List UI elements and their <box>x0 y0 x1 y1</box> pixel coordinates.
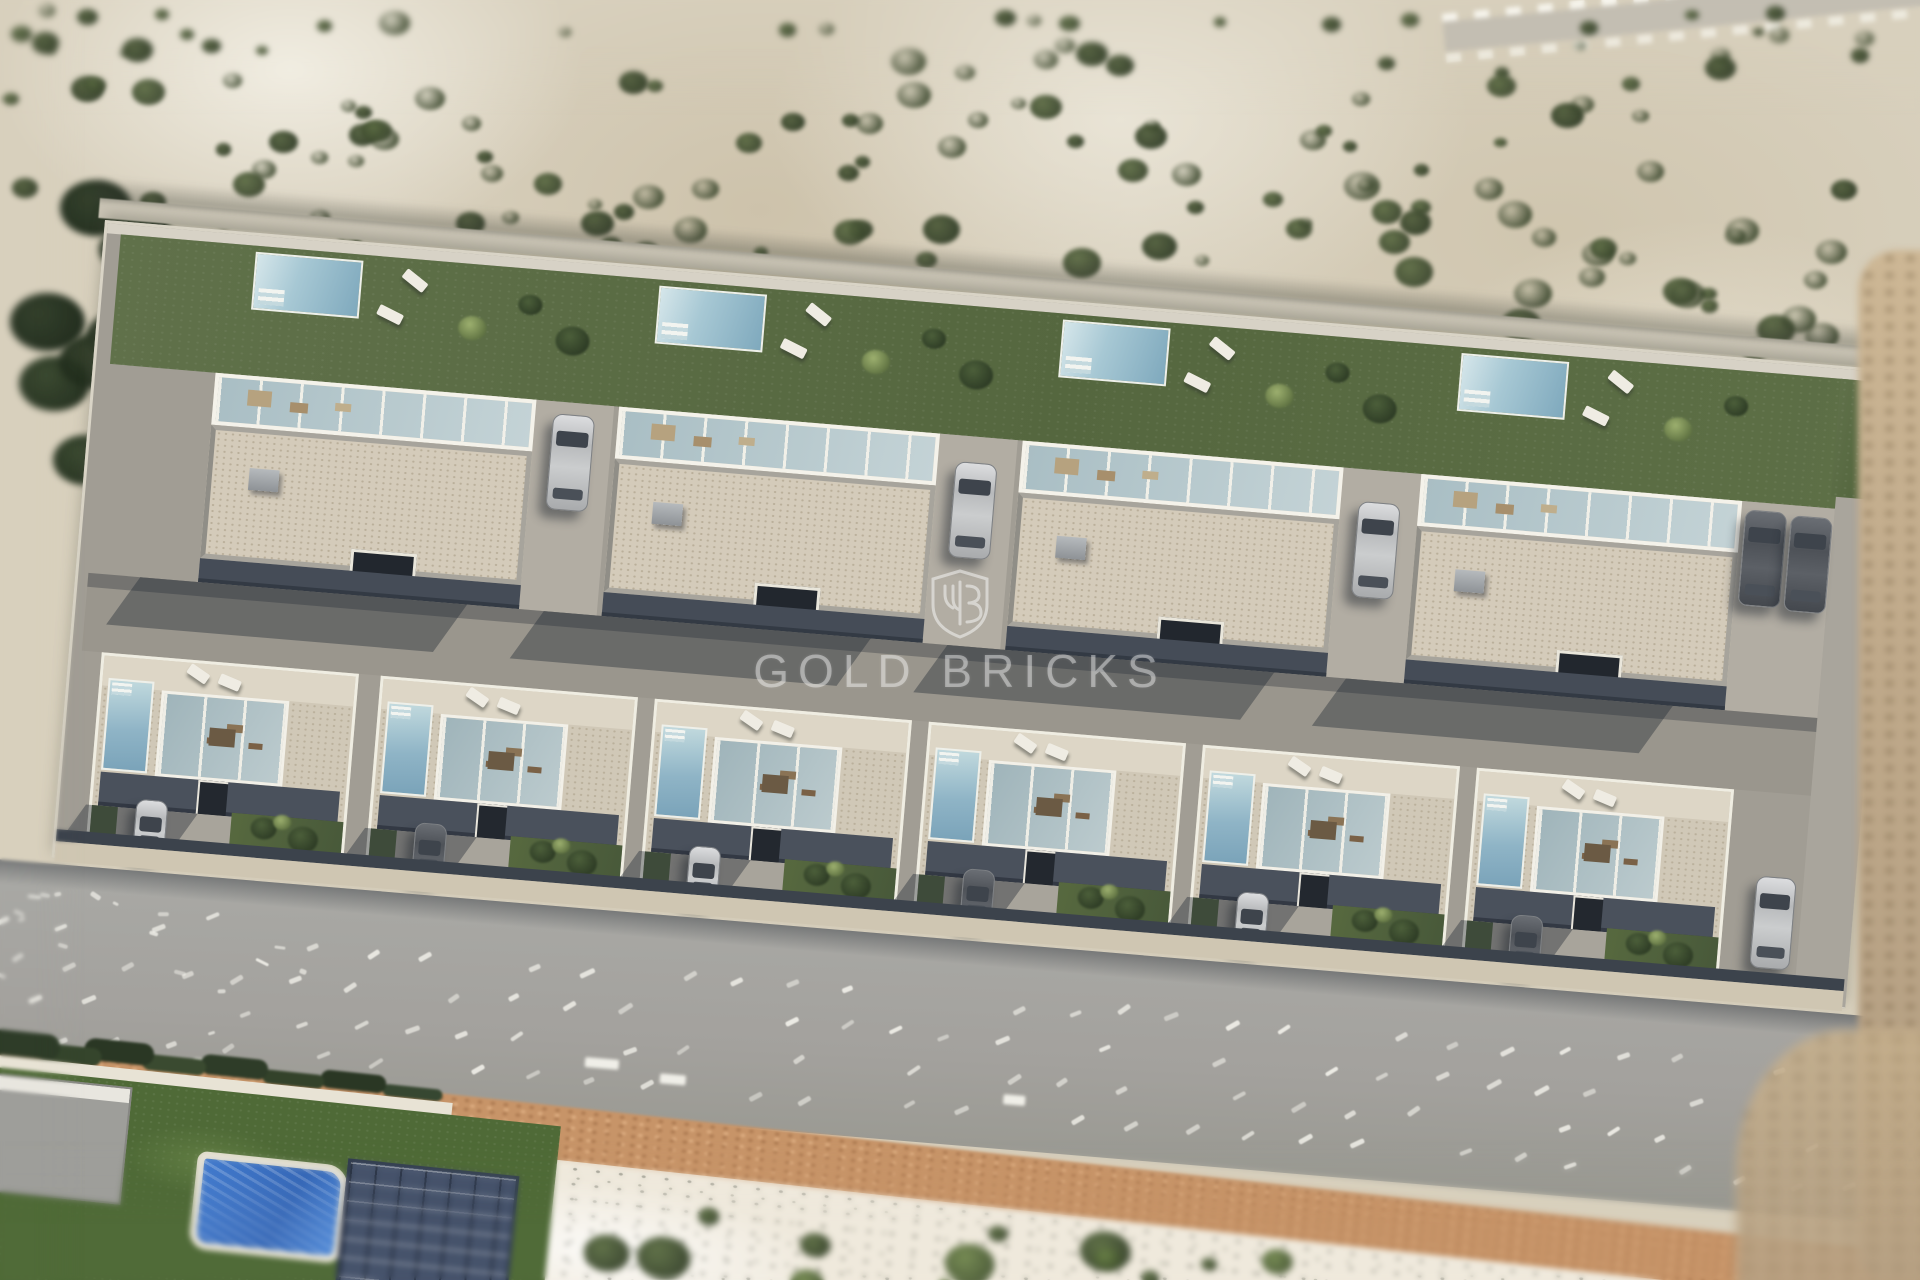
parking-mark <box>1241 1130 1255 1141</box>
parking-mark <box>907 1065 921 1077</box>
garden-pool <box>1457 353 1569 420</box>
scrub-bush <box>1498 201 1532 228</box>
parking-mark <box>526 1070 541 1080</box>
beach-shrub <box>943 1241 997 1280</box>
pergola-dining-set <box>761 774 788 794</box>
car-rear-window <box>1744 584 1775 597</box>
parking-mark <box>841 985 854 994</box>
scrub-bush <box>1622 77 1640 91</box>
pool-steps <box>938 752 959 766</box>
scrub-bush <box>1372 200 1403 224</box>
car-rear-window <box>1790 589 1821 602</box>
pergola-furniture <box>1453 491 1478 509</box>
scrub-bush <box>269 131 298 153</box>
road-speckle <box>218 989 226 993</box>
scrub-bush <box>1670 281 1705 308</box>
scrub-bush <box>1034 50 1059 69</box>
parking-mark <box>937 1034 950 1042</box>
scrub-bush <box>1571 96 1594 114</box>
garden-pool <box>251 252 363 319</box>
car-windshield <box>1748 527 1781 545</box>
parking-mark <box>1185 1124 1200 1136</box>
road-wear-patch <box>1003 1094 1026 1106</box>
scrub-bush <box>633 185 664 209</box>
parking-mark <box>1436 1071 1451 1081</box>
parking-mark <box>1098 1044 1111 1053</box>
glass-pergola <box>1256 783 1391 879</box>
parking-mark <box>1278 1024 1292 1035</box>
parking-mark <box>317 1050 332 1059</box>
parking-mark <box>1375 1072 1388 1082</box>
parked-car <box>1783 515 1833 614</box>
road-wear-patch <box>585 1057 620 1070</box>
scrub-bush <box>1263 192 1283 208</box>
scrub-bush <box>1619 252 1636 265</box>
pergola-dining-set <box>487 751 514 771</box>
parking-mark <box>786 979 800 988</box>
car-windshield <box>1361 518 1394 536</box>
parking-mark <box>296 1021 308 1029</box>
scrub-bush <box>647 80 663 92</box>
scrub-bush <box>1494 138 1506 147</box>
parking-mark <box>1445 1042 1458 1051</box>
car-rear-window <box>1358 575 1389 588</box>
car-windshield <box>1794 532 1827 550</box>
scrub-bush <box>1142 233 1177 260</box>
parking-mark <box>1459 1148 1473 1157</box>
scrub-bush <box>379 11 410 35</box>
scrub-bush <box>938 136 966 158</box>
car-windshield <box>1514 932 1537 949</box>
scrub-bush <box>362 120 391 143</box>
scrub-bush <box>1214 17 1227 27</box>
car-windshield <box>1240 909 1263 926</box>
courtyard-pool <box>1476 793 1530 889</box>
beach-shrub <box>988 1224 1010 1242</box>
car-windshield <box>556 431 589 449</box>
beach-shrub <box>1141 1270 1160 1280</box>
scrub-bush <box>534 173 562 195</box>
scrub-bush <box>1059 16 1079 32</box>
scrub-bush <box>1118 159 1148 182</box>
glass-pergola <box>982 760 1117 856</box>
parking-mark <box>623 1047 638 1056</box>
scrub-bush <box>84 77 105 93</box>
scrub-bush <box>348 155 364 167</box>
pool-steps <box>111 682 132 696</box>
back-row-villa-lot <box>914 722 1186 923</box>
back-row-villa-lot <box>640 699 912 900</box>
scrub-bush <box>838 165 859 181</box>
road-speckle <box>207 1031 214 1036</box>
scrub-bush <box>1487 75 1517 98</box>
parking-mark <box>1678 1164 1691 1175</box>
scrub-bush <box>155 9 170 20</box>
aerial-render-scene: GOLD BRICKS <box>0 0 1920 1280</box>
stairwell <box>1571 895 1604 931</box>
scrub-bush <box>1106 55 1134 77</box>
scrub-bush <box>477 151 493 164</box>
parking-mark <box>1298 1133 1313 1144</box>
road-speckle <box>299 968 307 975</box>
neighbour-building-roof <box>0 1072 133 1205</box>
parked-car <box>1351 501 1401 600</box>
scrub-bush <box>1401 13 1419 27</box>
beach-shrub <box>1200 1257 1217 1271</box>
road-speckle <box>17 916 25 922</box>
scrub-bush <box>614 204 635 220</box>
scrub-bush <box>1195 255 1210 266</box>
scrub-bush <box>619 71 648 94</box>
scrub-bush <box>1378 57 1394 70</box>
road-speckle <box>90 891 102 901</box>
parking-mark <box>903 1100 916 1110</box>
parking-mark <box>447 992 460 1004</box>
scrub-bush <box>1580 21 1598 35</box>
scrub-bush <box>1574 41 1586 50</box>
parking-mark <box>995 1035 1011 1046</box>
scrub-bush <box>856 113 884 135</box>
parking-mark <box>563 1001 578 1013</box>
scrub-bush <box>842 114 859 127</box>
parking-mark <box>121 962 135 972</box>
beach-shrub <box>799 1231 832 1259</box>
car-windshield <box>966 885 989 902</box>
pool-steps <box>1487 798 1508 812</box>
back-row-villa-lot <box>87 652 359 853</box>
ac-unit <box>1055 536 1087 560</box>
parking-mark <box>888 1025 902 1035</box>
parking-mark <box>1500 1046 1516 1057</box>
pergola-dining-set <box>1035 797 1062 817</box>
gold-bricks-shield-logo <box>929 568 991 640</box>
stairwell <box>1297 872 1330 908</box>
parking-mark <box>28 995 43 1005</box>
parking-mark <box>366 948 380 959</box>
parking-mark <box>1534 1085 1550 1097</box>
parking-mark <box>404 1025 419 1035</box>
scrub-bush <box>355 106 372 119</box>
parking-mark <box>54 923 68 932</box>
car-windshield <box>692 862 715 879</box>
scrub-bush <box>923 215 960 244</box>
scrub-bush <box>317 20 332 32</box>
back-row-villa-lot <box>366 676 638 877</box>
scrub-bush <box>1316 125 1332 137</box>
parking-mark <box>510 1031 524 1043</box>
parking-mark <box>676 1045 690 1056</box>
beach-shrub <box>697 1207 720 1227</box>
parking-mark <box>785 1016 800 1026</box>
scrub-bush <box>891 48 926 75</box>
scrub-bush <box>1685 10 1698 20</box>
back-row-villa-lot <box>1188 745 1460 946</box>
parking-mark <box>793 1054 806 1065</box>
courtyard-pool <box>380 701 434 797</box>
pool-steps <box>664 729 685 743</box>
glass-pergola <box>434 714 569 810</box>
glass-pergola <box>708 737 843 833</box>
parked-car <box>545 413 595 512</box>
scrub-bush <box>1532 228 1556 246</box>
ac-unit <box>651 502 683 526</box>
parking-mark <box>471 1064 485 1075</box>
stairwell <box>196 780 229 816</box>
pergola-dining-set <box>1310 820 1337 840</box>
scrub-bush <box>311 151 329 165</box>
scrub-bush <box>216 143 232 155</box>
parked-car <box>1749 876 1797 971</box>
scrub-bush <box>1135 124 1167 149</box>
parking-mark <box>1559 1124 1572 1133</box>
scrub-bush <box>1343 141 1358 152</box>
scrub-bush <box>1352 92 1370 106</box>
scrub-bush <box>1076 42 1108 67</box>
scrub-bush <box>1067 135 1084 148</box>
front-row-villa <box>198 373 536 609</box>
courtyard-pool <box>928 747 982 843</box>
road-speckle <box>255 958 269 967</box>
scrub-bush <box>968 112 989 128</box>
parking-mark <box>1013 1005 1027 1015</box>
scrub-bush <box>1055 38 1075 54</box>
parking-mark <box>1123 1121 1138 1132</box>
road-wear-patch <box>659 1073 686 1085</box>
road-speckle <box>206 912 220 921</box>
scrub-bush <box>692 179 718 199</box>
parking-mark <box>62 962 77 973</box>
parking-mark <box>797 1095 812 1106</box>
scrub-bush <box>1579 267 1605 287</box>
ac-unit <box>1454 569 1486 593</box>
road-speckle <box>58 942 69 949</box>
courtyard-pool <box>1202 770 1256 866</box>
parking-mark <box>617 1002 633 1015</box>
scrub-bush <box>1322 17 1342 32</box>
scrub-bush <box>180 29 194 40</box>
parking-mark <box>354 1021 369 1031</box>
car-rear-window <box>1756 946 1785 959</box>
scrub-bush <box>736 133 761 153</box>
scrub-bush <box>39 4 55 16</box>
courtyard-pool <box>654 724 708 820</box>
parking-mark <box>1607 1126 1621 1137</box>
parking-mark <box>583 1077 595 1086</box>
pool-steps <box>1463 389 1490 407</box>
courtyard-pool <box>101 678 155 774</box>
parking-mark <box>1670 1052 1683 1062</box>
parking-mark <box>0 916 10 927</box>
road-speckle <box>54 892 61 897</box>
scrub-bush <box>415 87 445 110</box>
scrub-bush <box>1379 230 1410 254</box>
pool-steps <box>1212 775 1233 789</box>
parking-mark <box>1115 1085 1128 1095</box>
scrub-bush <box>897 82 931 108</box>
parking-mark <box>81 994 96 1004</box>
scrub-bush <box>3 93 19 105</box>
parking-mark <box>1486 1079 1502 1091</box>
watermark-text: GOLD BRICKS <box>740 644 1180 698</box>
road-speckle <box>39 893 50 899</box>
parking-mark <box>508 993 520 1002</box>
scrub-bush <box>223 73 242 88</box>
scrub-bush <box>341 100 357 112</box>
scrub-bush <box>32 32 60 53</box>
beach-shrub <box>788 1268 826 1280</box>
scrub-bush <box>1011 98 1025 109</box>
scrub-bush <box>481 165 503 182</box>
parking-mark <box>1395 1032 1409 1042</box>
pergola-furniture <box>247 390 272 408</box>
scrub-bush <box>1172 163 1201 186</box>
watermark: GOLD BRICKS <box>740 568 1180 698</box>
scrub-bush <box>1632 110 1648 123</box>
scrub-bush <box>11 26 32 43</box>
parking-mark <box>1689 1098 1704 1107</box>
pergola-dining-set <box>1584 843 1611 863</box>
back-row-villa-lot <box>1462 768 1734 969</box>
beach-shrub <box>1261 1248 1294 1276</box>
parking-mark <box>230 974 244 985</box>
scrub-bush <box>122 38 154 63</box>
pergola-furniture <box>651 423 676 441</box>
scrub-bush <box>1027 15 1041 26</box>
car-windshield <box>139 816 162 833</box>
parking-mark <box>306 942 319 951</box>
pool-steps <box>258 288 285 306</box>
scrub-bush <box>1187 201 1204 214</box>
scrub-bush <box>1753 28 1764 37</box>
parking-mark <box>1559 1046 1571 1055</box>
scrub-bush <box>1705 56 1736 80</box>
parking-mark <box>1563 1162 1577 1170</box>
road-speckle <box>0 970 6 979</box>
scrub-bush <box>132 79 165 105</box>
parking-mark <box>239 1010 251 1018</box>
parking-mark <box>417 951 432 963</box>
scrub-bush <box>1769 27 1789 42</box>
parking-mark <box>1514 1151 1528 1162</box>
scrub-bush <box>855 156 870 168</box>
solar-panel-roof <box>332 1158 520 1280</box>
parking-mark <box>1070 1114 1085 1125</box>
parking-mark <box>1117 1003 1132 1015</box>
parking-mark <box>1654 1134 1666 1144</box>
parking-mark <box>841 1019 855 1030</box>
parking-mark <box>1055 1077 1068 1088</box>
road-speckle <box>274 945 286 950</box>
stairwell <box>475 803 508 839</box>
scrub-bush <box>588 199 602 210</box>
glass-pergola <box>1530 806 1665 902</box>
scrub-bush <box>1816 240 1847 264</box>
parking-mark <box>11 952 24 962</box>
scrub-bush <box>1414 164 1429 176</box>
road-speckle <box>28 895 41 900</box>
parking-mark <box>454 1030 468 1040</box>
glass-pergola <box>155 690 290 786</box>
road-speckle <box>158 912 169 916</box>
scrub-bush <box>462 116 481 131</box>
scrub-bush <box>1725 228 1746 244</box>
scrub-bush <box>256 46 268 55</box>
scrub-bush <box>781 113 805 131</box>
car-rear-window <box>955 535 986 548</box>
parking-mark <box>729 977 743 987</box>
parking-mark <box>579 968 595 979</box>
parking-mark <box>1163 1011 1179 1021</box>
scrub-bush <box>1400 210 1432 235</box>
parking-mark <box>1344 1109 1357 1120</box>
scrub-bush <box>1395 257 1433 286</box>
parking-mark <box>1406 1104 1421 1117</box>
parking-mark <box>1232 1091 1246 1101</box>
parking-mark <box>1069 1010 1081 1018</box>
parking-mark <box>953 1105 969 1116</box>
front-row-villa <box>1404 474 1742 710</box>
car-windshield <box>1759 893 1790 910</box>
car-windshield <box>958 478 991 496</box>
stairwell <box>1023 849 1056 885</box>
parking-mark <box>1350 1138 1366 1149</box>
scrub-bush <box>1299 218 1312 228</box>
pergola-furniture <box>1054 457 1079 475</box>
parking-mark <box>683 971 697 982</box>
scrub-bush <box>1637 161 1664 182</box>
ac-unit <box>248 468 280 492</box>
road-speckle <box>112 901 119 907</box>
parked-car <box>948 461 998 560</box>
parking-mark <box>528 963 541 972</box>
parking-mark <box>1324 1067 1338 1078</box>
garden-pool <box>655 286 767 353</box>
parking-mark <box>640 1079 654 1090</box>
scrub-bush <box>1831 180 1856 200</box>
scrub-bush <box>202 39 221 53</box>
parking-mark <box>1211 1058 1226 1069</box>
pool-steps <box>390 706 411 720</box>
scrub-bush <box>1804 271 1827 289</box>
scrub-bush <box>1030 95 1061 119</box>
scrub-bush <box>1855 31 1875 46</box>
scrub-bush <box>779 23 796 36</box>
scrub-bush <box>1851 48 1869 62</box>
parked-car <box>1738 509 1788 608</box>
stairwell <box>749 826 782 862</box>
neighbour-swimming-pool <box>188 1151 349 1264</box>
parking-mark <box>289 975 303 984</box>
parking-mark <box>749 1091 763 1101</box>
scrub-bush <box>819 23 834 35</box>
parking-mark <box>1007 1073 1022 1085</box>
scrub-bush <box>955 65 975 81</box>
pergola-dining-set <box>208 728 235 748</box>
scrub-bush <box>12 178 38 198</box>
pool-steps <box>661 322 688 340</box>
parking-mark <box>1617 1052 1630 1061</box>
scrub-bush <box>1475 178 1503 200</box>
scrub-bush <box>77 9 99 26</box>
car-rear-window <box>552 487 583 500</box>
parking-mark <box>343 982 358 994</box>
scrub-bush <box>1357 178 1375 192</box>
road-speckle <box>173 970 185 977</box>
scrub-bush <box>559 27 571 36</box>
car-windshield <box>418 839 441 856</box>
garden-pool <box>1058 320 1170 387</box>
parking-mark <box>1291 1101 1307 1113</box>
